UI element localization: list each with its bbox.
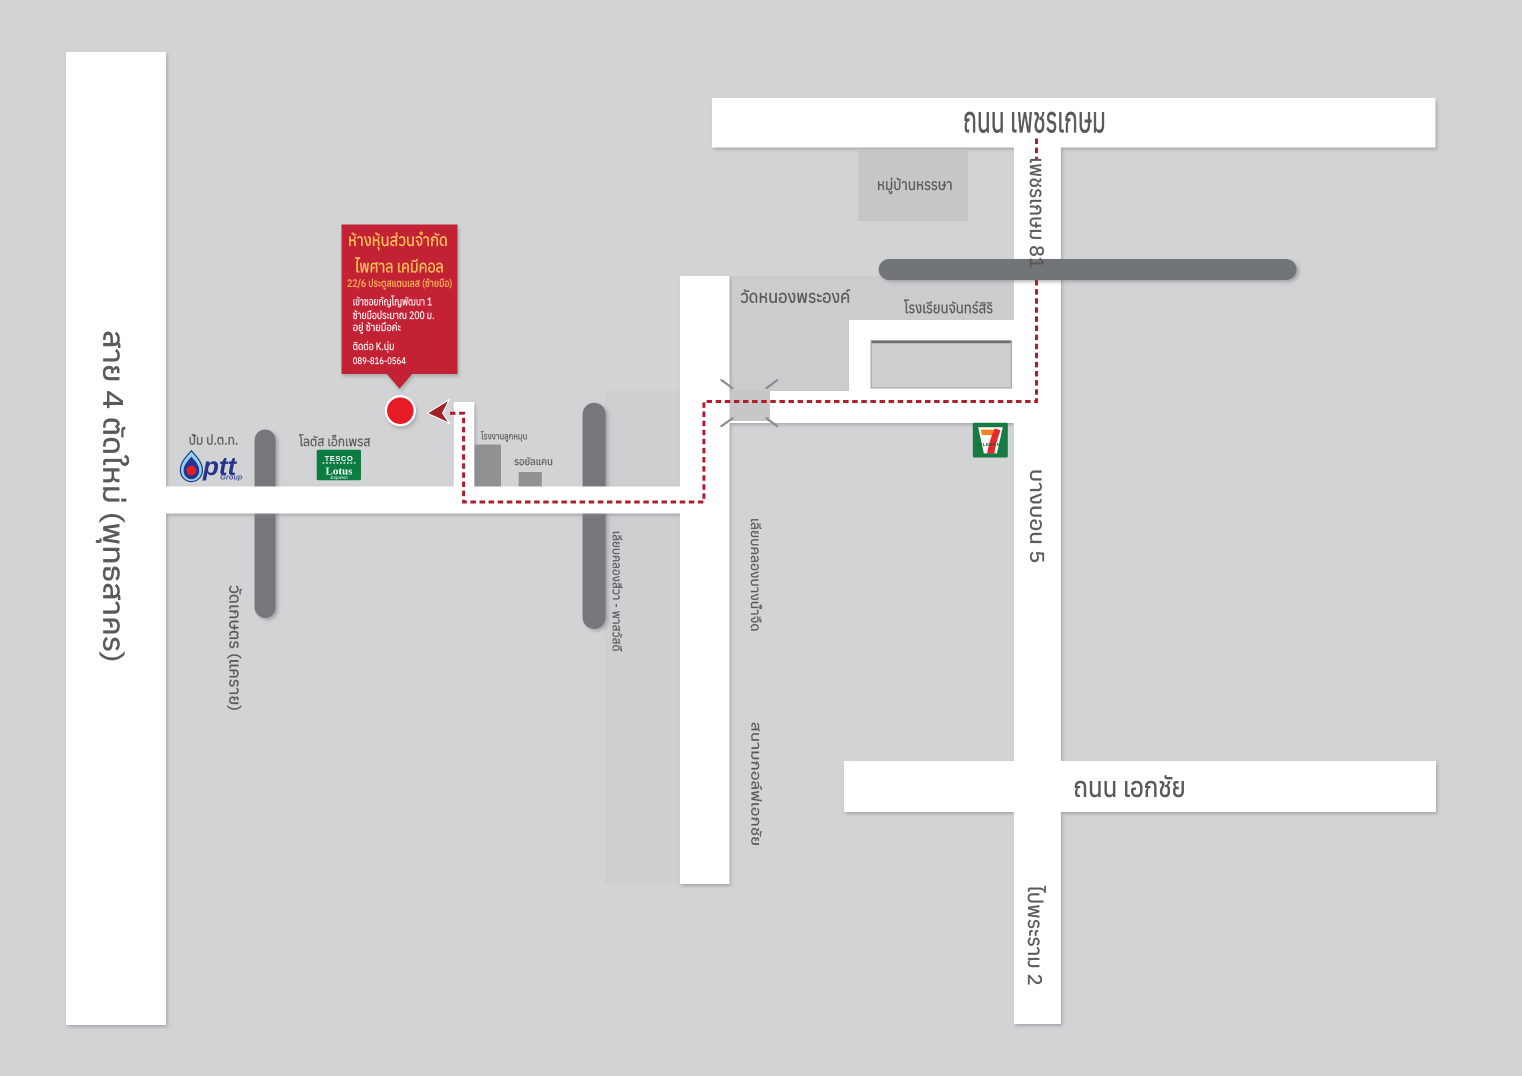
- svg-text:ELEVEN: ELEVEN: [979, 442, 1000, 448]
- svg-text:Express: Express: [330, 475, 348, 481]
- svg-text:TESCO: TESCO: [325, 454, 354, 463]
- svg-text:Group: Group: [220, 472, 243, 481]
